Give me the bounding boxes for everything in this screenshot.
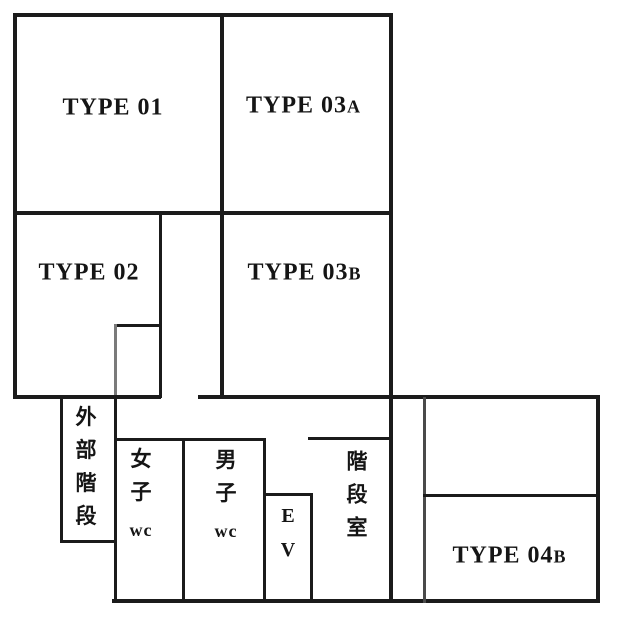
wall-shaft-bottom	[60, 540, 117, 543]
wall-bottom	[112, 599, 600, 603]
wall-type02-right	[159, 213, 162, 398]
room-label-text: TYPE 01	[62, 95, 163, 121]
room-label-type01: TYPE 01	[62, 95, 163, 122]
room-label-text: TYPE 04	[452, 543, 553, 569]
label-char: 階	[347, 452, 368, 473]
wall-left	[13, 13, 17, 399]
wall-wc-left	[114, 395, 117, 603]
label-wc-text: wc	[130, 521, 153, 539]
wall-stairwell-top	[308, 437, 391, 440]
wall-ev-top	[263, 493, 313, 496]
wall-type02-bottom	[13, 395, 161, 399]
wall-mid-horizontal	[198, 395, 600, 399]
floor-plan: TYPE 01 TYPE 03A TYPE 02 TYPE 03B TYPE 0…	[0, 0, 630, 630]
label-char: 段	[76, 506, 97, 527]
wall-ev-right	[310, 495, 313, 603]
room-label-type03a: TYPE 03A	[246, 93, 360, 120]
label-char: 階	[76, 473, 97, 494]
room-label-suffix: A	[347, 97, 360, 117]
room-label-text: TYPE 03	[246, 93, 347, 119]
wall-type04b-divider	[423, 494, 599, 497]
label-wc-text: wc	[215, 522, 238, 540]
room-label-type03b: TYPE 03B	[247, 260, 360, 287]
label-mens-wc: 男 子 wc	[215, 450, 238, 540]
label-stairwell: 階 段 室	[347, 452, 368, 539]
room-label-type04b: TYPE 04B	[452, 543, 565, 570]
wall-mens-wc-right	[263, 440, 266, 603]
label-elevator: E V	[281, 506, 295, 560]
room-label-type02: TYPE 02	[38, 260, 139, 287]
wall-wc-divider	[182, 440, 185, 603]
room-label-text: TYPE 02	[38, 260, 139, 286]
room-label-suffix: B	[349, 264, 361, 284]
label-char: 子	[216, 483, 237, 504]
room-label-text: TYPE 03	[247, 260, 348, 286]
wall-notch-top	[114, 324, 161, 327]
wall-type04b-left	[423, 397, 426, 603]
label-char: 男	[216, 450, 237, 471]
label-external-stair: 外 部 階 段	[76, 407, 97, 527]
label-char: 外	[76, 407, 97, 428]
wall-divider-vertical	[220, 13, 224, 398]
wall-top	[13, 13, 393, 17]
label-char: V	[281, 540, 295, 560]
wall-shaft-left	[60, 397, 63, 543]
label-char: E	[281, 506, 294, 526]
label-char: 室	[347, 518, 368, 539]
wall-right-outer	[596, 395, 600, 603]
wall-divider-horizontal	[13, 211, 393, 215]
label-char: 女	[131, 449, 152, 470]
wall-right-tall	[389, 13, 393, 603]
label-char: 部	[76, 440, 97, 461]
room-label-suffix: B	[554, 547, 566, 567]
label-char: 段	[347, 485, 368, 506]
label-womens-wc: 女 子 wc	[130, 449, 153, 539]
wall-notch-left	[114, 324, 117, 398]
label-char: 子	[131, 482, 152, 503]
wall-wc-top	[114, 438, 266, 441]
